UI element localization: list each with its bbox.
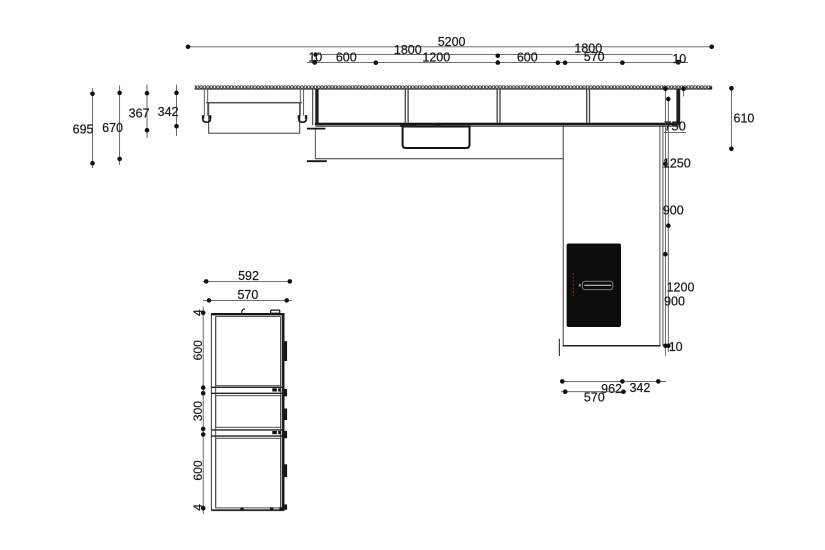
svg-text:10: 10 bbox=[672, 52, 686, 66]
svg-text:600: 600 bbox=[191, 460, 205, 481]
svg-text:600: 600 bbox=[191, 340, 205, 361]
svg-text:1250: 1250 bbox=[663, 156, 691, 170]
svg-text:900: 900 bbox=[664, 294, 685, 308]
svg-text:570: 570 bbox=[237, 288, 258, 302]
svg-text:570: 570 bbox=[584, 391, 605, 405]
svg-text:670: 670 bbox=[102, 121, 123, 135]
svg-text:300: 300 bbox=[191, 401, 205, 422]
svg-text:1200: 1200 bbox=[422, 51, 450, 65]
svg-text:10: 10 bbox=[669, 340, 683, 354]
svg-text:4: 4 bbox=[191, 309, 205, 316]
svg-text:10: 10 bbox=[308, 51, 322, 65]
svg-text:342: 342 bbox=[158, 105, 179, 119]
svg-text:5200: 5200 bbox=[438, 35, 466, 49]
svg-text:570: 570 bbox=[584, 50, 605, 64]
svg-text:600: 600 bbox=[517, 51, 538, 65]
svg-text:900: 900 bbox=[663, 204, 684, 218]
svg-text:1200: 1200 bbox=[667, 281, 695, 295]
svg-text:600: 600 bbox=[336, 51, 357, 65]
svg-text:367: 367 bbox=[129, 107, 150, 121]
svg-text:750: 750 bbox=[664, 119, 686, 134]
svg-text:695: 695 bbox=[73, 123, 94, 137]
svg-text:342: 342 bbox=[629, 381, 650, 395]
svg-text:4: 4 bbox=[191, 504, 205, 511]
svg-text:610: 610 bbox=[734, 112, 755, 126]
svg-text:1800: 1800 bbox=[394, 43, 422, 57]
svg-text:592: 592 bbox=[238, 269, 259, 283]
